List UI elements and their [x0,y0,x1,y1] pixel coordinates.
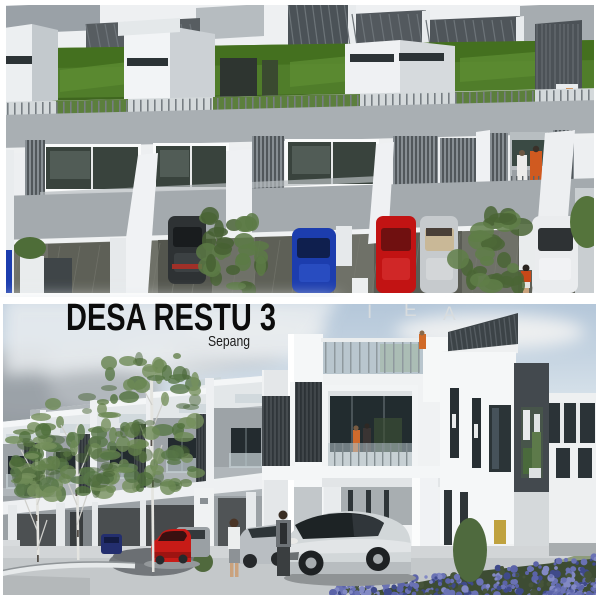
svg-text:Sepang: Sepang [208,333,250,350]
svg-text:A: A [443,304,456,325]
svg-text:I: I [367,302,372,323]
